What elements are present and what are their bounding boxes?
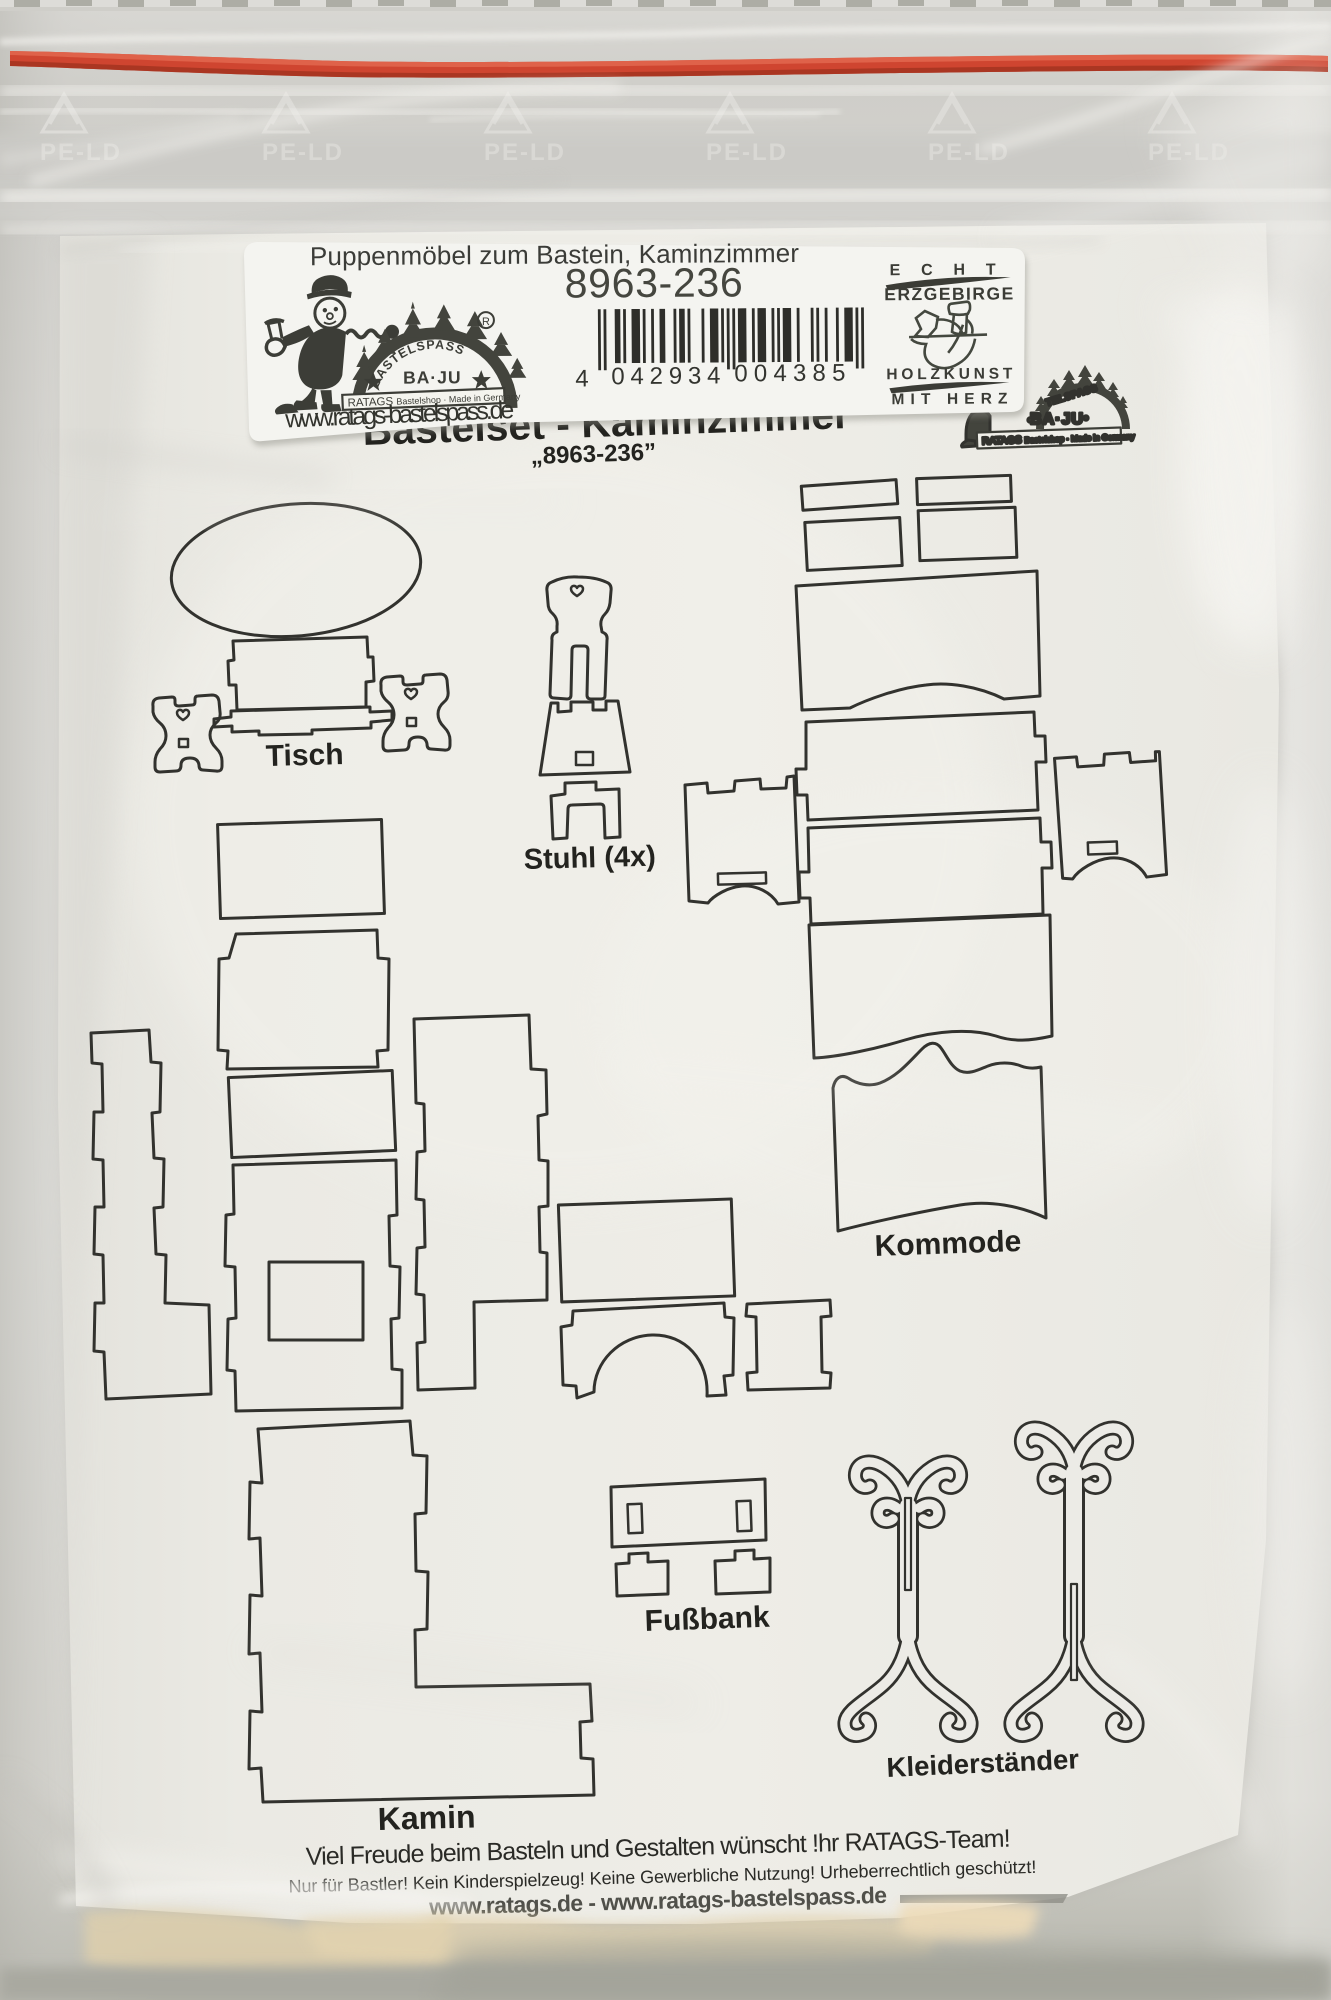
svg-text:8963-236: 8963-236 bbox=[565, 259, 743, 306]
svg-text:Kamin: Kamin bbox=[377, 1798, 476, 1837]
svg-text:042934: 042934 bbox=[611, 362, 726, 390]
svg-text:HOLZKUNST: HOLZKUNST bbox=[886, 365, 1013, 383]
svg-text:PE-LD: PE-LD bbox=[484, 139, 566, 166]
svg-text:R: R bbox=[482, 316, 490, 328]
svg-text:4: 4 bbox=[575, 365, 589, 392]
svg-text:Tisch: Tisch bbox=[265, 738, 344, 773]
svg-text:Kommode: Kommode bbox=[874, 1225, 1022, 1263]
svg-text:PE-LD: PE-LD bbox=[706, 139, 788, 166]
svg-text:BA·JU: BA·JU bbox=[403, 367, 462, 387]
svg-text:004385: 004385 bbox=[734, 360, 851, 388]
svg-text:Fußbank: Fußbank bbox=[644, 1601, 770, 1638]
svg-text:PE-LD: PE-LD bbox=[262, 139, 344, 166]
svg-text:BA·JU: BA·JU bbox=[1030, 411, 1084, 428]
svg-text:Stuhl (4x): Stuhl (4x) bbox=[523, 841, 656, 876]
svg-text:„8963-236”: „8963-236” bbox=[530, 439, 656, 470]
svg-text:ERZGEBIRGE: ERZGEBIRGE bbox=[884, 283, 1013, 304]
